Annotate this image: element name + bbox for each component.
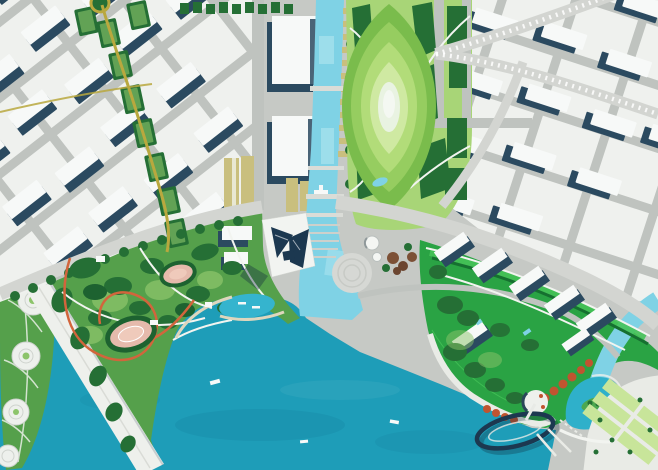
exhibition-hall — [267, 116, 316, 184]
masterplan-aerial-svg: Waterfront city masterplan aerial render… — [0, 0, 658, 470]
circular-plaza — [523, 390, 548, 414]
masterplan-rendering: Waterfront city masterplan aerial render… — [0, 0, 658, 470]
roundabout — [91, 0, 109, 12]
exhibition-hall — [267, 16, 318, 92]
dome-pavilion — [365, 236, 379, 250]
dome-pavilion — [373, 253, 382, 262]
